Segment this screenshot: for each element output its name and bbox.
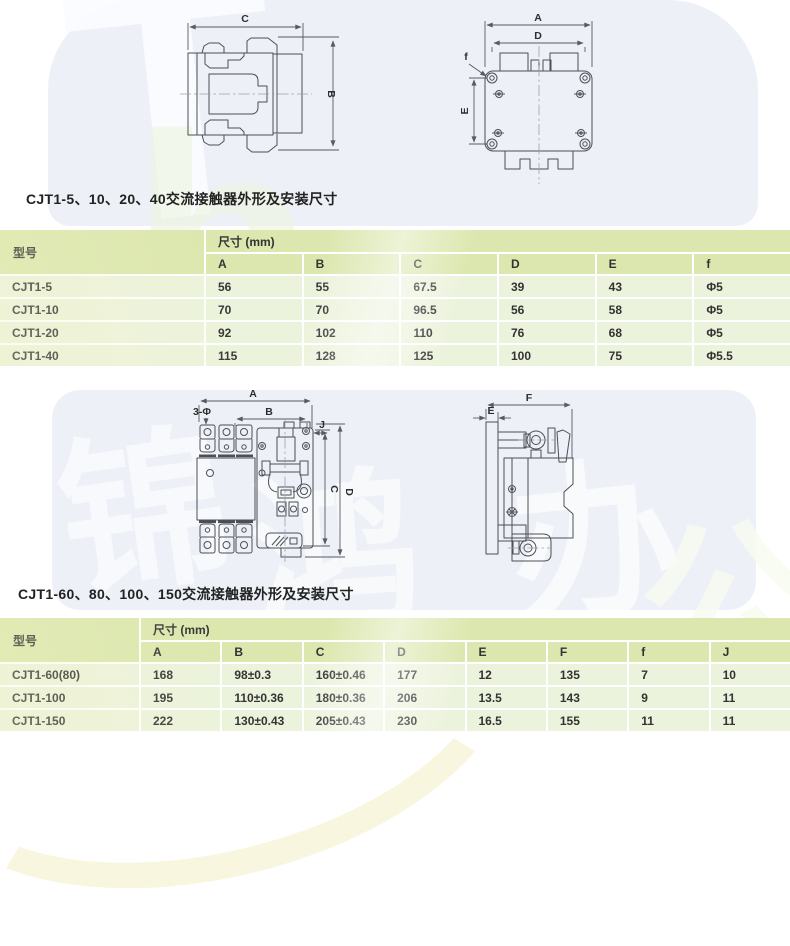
value-cell: Φ5 bbox=[694, 322, 790, 343]
col-header: F bbox=[548, 642, 627, 662]
value-cell: 56 bbox=[499, 299, 595, 320]
value-cell: 230 bbox=[385, 710, 464, 731]
col-header: A bbox=[141, 642, 220, 662]
value-cell: 70 bbox=[206, 299, 302, 320]
value-cell: 55 bbox=[304, 276, 400, 297]
contactor-outline bbox=[197, 422, 313, 557]
value-cell: 70 bbox=[304, 299, 400, 320]
value-cell: 100 bbox=[499, 345, 595, 366]
dim-label-d: D bbox=[534, 30, 542, 42]
value-cell: 7 bbox=[629, 664, 708, 685]
value-cell: 13.5 bbox=[467, 687, 546, 708]
section1-title: CJT1-5、10、20、40交流接触器外形及安装尺寸 bbox=[26, 189, 338, 209]
value-cell: Φ5 bbox=[694, 299, 790, 320]
col-header-model: 型号 bbox=[0, 230, 204, 274]
contactor-outline bbox=[486, 422, 573, 561]
value-cell: 67.5 bbox=[401, 276, 497, 297]
value-cell: 110 bbox=[401, 322, 497, 343]
value-cell: 10 bbox=[711, 664, 790, 685]
col-header: E bbox=[597, 254, 693, 274]
value-cell: Φ5 bbox=[694, 276, 790, 297]
value-cell: 16.5 bbox=[467, 710, 546, 731]
value-cell: Φ5.5 bbox=[694, 345, 790, 366]
dim-label-e: E bbox=[487, 405, 494, 417]
value-cell: 110±0.36 bbox=[222, 687, 301, 708]
value-cell: 102 bbox=[304, 322, 400, 343]
dim-label-c: C bbox=[328, 485, 340, 493]
col-header: f bbox=[694, 254, 790, 274]
col-header: C bbox=[401, 254, 497, 274]
drawing-large-contactor-side-view: F E bbox=[440, 386, 670, 590]
value-cell: 222 bbox=[141, 710, 220, 731]
drawing-small-contactor-side-view: C B bbox=[148, 0, 383, 186]
value-cell: 195 bbox=[141, 687, 220, 708]
value-cell: 58 bbox=[597, 299, 693, 320]
col-header: A bbox=[206, 254, 302, 274]
col-header: D bbox=[499, 254, 595, 274]
value-cell: 155 bbox=[548, 710, 627, 731]
value-cell: 125 bbox=[401, 345, 497, 366]
value-cell: 98±0.3 bbox=[222, 664, 301, 685]
col-header: C bbox=[304, 642, 383, 662]
dimension-table-small-models: 型号 尺寸 (mm) A B C D E f CJT1-5 56 55 67.5… bbox=[0, 230, 790, 366]
col-header-size: 尺寸 (mm) bbox=[141, 618, 790, 640]
col-header: E bbox=[467, 642, 546, 662]
model-cell: CJT1-20 bbox=[0, 322, 204, 343]
col-header: B bbox=[304, 254, 400, 274]
dim-label-holes: 3-Φ bbox=[193, 406, 211, 418]
col-header: D bbox=[385, 642, 464, 662]
value-cell: 135 bbox=[548, 664, 627, 685]
value-cell: 56 bbox=[206, 276, 302, 297]
value-cell: 11 bbox=[711, 710, 790, 731]
dim-label-j: J bbox=[319, 419, 325, 431]
value-cell: 68 bbox=[597, 322, 693, 343]
value-cell: 11 bbox=[711, 687, 790, 708]
dim-label-f: f bbox=[464, 51, 468, 63]
model-cell: CJT1-40 bbox=[0, 345, 204, 366]
value-cell: 39 bbox=[499, 276, 595, 297]
col-header: J bbox=[711, 642, 790, 662]
col-header: f bbox=[629, 642, 708, 662]
dim-label-a: A bbox=[249, 388, 257, 400]
dim-label-d: D bbox=[343, 488, 355, 496]
model-cell: CJT1-10 bbox=[0, 299, 204, 320]
dimension-table-large-models: 型号 尺寸 (mm) A B C D E F f J CJT1-60(80) 1… bbox=[0, 618, 790, 731]
value-cell: 43 bbox=[597, 276, 693, 297]
section2-title: CJT1-60、80、100、150交流接触器外形及安装尺寸 bbox=[18, 584, 354, 604]
value-cell: 130±0.43 bbox=[222, 710, 301, 731]
value-cell: 168 bbox=[141, 664, 220, 685]
value-cell: 177 bbox=[385, 664, 464, 685]
value-cell: 128 bbox=[304, 345, 400, 366]
model-cell: CJT1-100 bbox=[0, 687, 139, 708]
dim-label-b: B bbox=[325, 90, 337, 98]
dim-label-c: C bbox=[241, 13, 249, 25]
value-cell: 160±0.46 bbox=[304, 664, 383, 685]
dimension-lines: A D E f bbox=[459, 12, 592, 144]
value-cell: 76 bbox=[499, 322, 595, 343]
dim-label-f: F bbox=[526, 392, 533, 404]
dimension-lines: C B bbox=[188, 13, 339, 150]
dim-label-b: B bbox=[265, 406, 273, 418]
value-cell: 12 bbox=[467, 664, 546, 685]
model-cell: CJT1-60(80) bbox=[0, 664, 139, 685]
centerline bbox=[508, 440, 556, 548]
value-cell: 75 bbox=[597, 345, 693, 366]
value-cell: 115 bbox=[206, 345, 302, 366]
model-cell: CJT1-150 bbox=[0, 710, 139, 731]
value-cell: 180±0.36 bbox=[304, 687, 383, 708]
value-cell: 11 bbox=[629, 710, 708, 731]
value-cell: 206 bbox=[385, 687, 464, 708]
model-cell: CJT1-5 bbox=[0, 276, 204, 297]
value-cell: 96.5 bbox=[401, 299, 497, 320]
contactor-outline bbox=[188, 38, 302, 152]
contactor-outline bbox=[485, 53, 592, 169]
col-header-model: 型号 bbox=[0, 618, 139, 662]
value-cell: 143 bbox=[548, 687, 627, 708]
value-cell: 92 bbox=[206, 322, 302, 343]
value-cell: 205±0.43 bbox=[304, 710, 383, 731]
col-header: B bbox=[222, 642, 301, 662]
dim-label-e: E bbox=[459, 107, 471, 114]
dim-label-a: A bbox=[534, 12, 542, 24]
value-cell: 9 bbox=[629, 687, 708, 708]
drawing-large-contactor-front-view: A B J 3-Φ C D bbox=[183, 386, 395, 590]
col-header-size: 尺寸 (mm) bbox=[206, 230, 790, 252]
drawing-small-contactor-mounting-view: A D E f bbox=[440, 0, 675, 190]
